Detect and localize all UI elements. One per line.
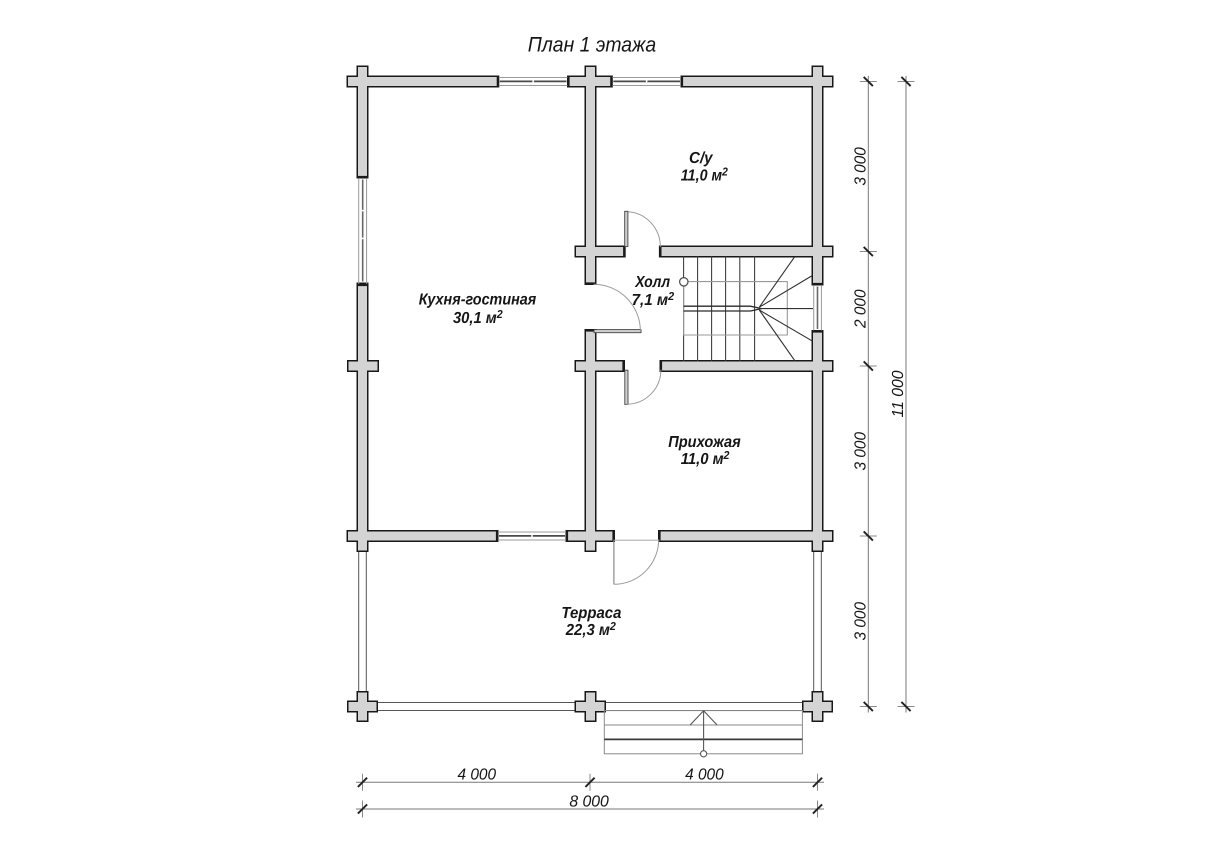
svg-text:Холл: Холл <box>634 274 670 291</box>
svg-text:7,1 м2: 7,1 м2 <box>632 291 675 309</box>
svg-text:2 000: 2 000 <box>852 289 869 329</box>
svg-text:3 000: 3 000 <box>852 147 869 186</box>
svg-text:Кухня-гостиная: Кухня-гостиная <box>419 292 537 309</box>
svg-text:4 000: 4 000 <box>458 766 497 783</box>
svg-text:22,3 м2: 22,3 м2 <box>565 621 617 639</box>
svg-text:11,0 м2: 11,0 м2 <box>681 450 730 468</box>
svg-text:Прихожая: Прихожая <box>668 434 741 451</box>
svg-text:8 000: 8 000 <box>569 794 609 811</box>
svg-text:30,1 м2: 30,1 м2 <box>453 309 503 327</box>
svg-text:4 000: 4 000 <box>685 766 724 783</box>
svg-text:С/у: С/у <box>689 150 714 167</box>
svg-text:11,0 м2: 11,0 м2 <box>681 167 729 185</box>
svg-text:11 000: 11 000 <box>890 370 907 417</box>
svg-text:3 000: 3 000 <box>852 432 869 471</box>
svg-text:Терраса: Терраса <box>561 605 621 622</box>
svg-text:План 1 этажа: План 1 этажа <box>528 34 656 57</box>
svg-text:3 000: 3 000 <box>852 602 869 641</box>
